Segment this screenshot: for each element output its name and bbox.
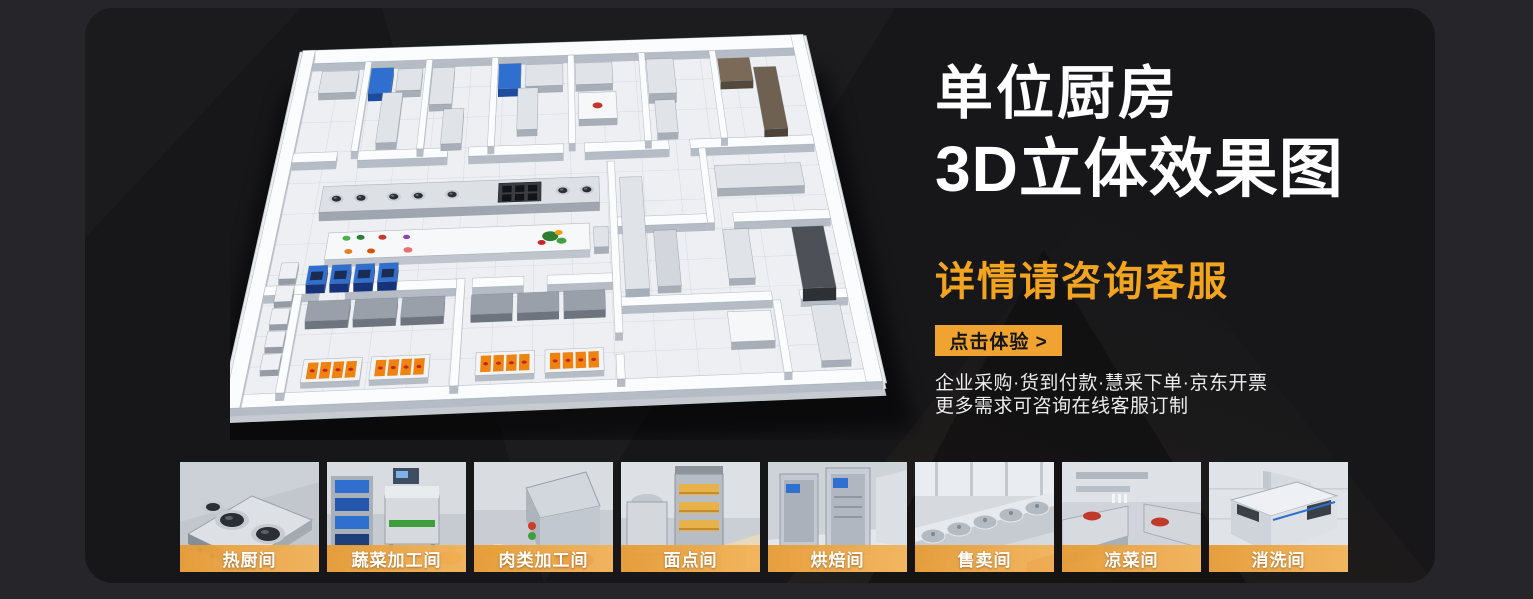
kitchen-3d-floorplan-image [230, 20, 930, 440]
cta-button[interactable]: 点击体验 > [935, 325, 1062, 356]
description-line-1: 企业采购·货到付款·慧采下单·京东开票 [935, 372, 1435, 395]
thumbnail-label: 烘焙间 [768, 545, 907, 572]
thumbnail-label: 凉菜间 [1062, 545, 1201, 572]
title-line-2: 3D立体效果图 [935, 137, 1435, 201]
subtitle: 详情请咨询客服 [935, 249, 1435, 307]
thumbnail-meat-processing[interactable]: 肉类加工间 [474, 462, 613, 572]
promo-banner: 单位厨房 3D立体效果图 详情请咨询客服 点击体验 > 企业采购·货到付款·慧采… [0, 0, 1533, 599]
thumbnail-selling-room[interactable]: 售卖间 [915, 462, 1054, 572]
banner-card: 单位厨房 3D立体效果图 详情请咨询客服 点击体验 > 企业采购·货到付款·慧采… [85, 8, 1435, 583]
thumbnail-pastry-room[interactable]: 面点间 [621, 462, 760, 572]
description-line-2: 更多需求可咨询在线客服订制 [935, 395, 1435, 418]
description-lines: 企业采购·货到付款·慧采下单·京东开票 更多需求可咨询在线客服订制 [935, 372, 1435, 418]
room-thumbnail-gallery: 热厨间 蔬菜加工间 [180, 462, 1348, 572]
thumbnail-hot-kitchen[interactable]: 热厨间 [180, 462, 319, 572]
thumbnail-label: 售卖间 [915, 545, 1054, 572]
thumbnail-washing-room[interactable]: 消洗间 [1209, 462, 1348, 572]
thumbnail-cold-dish-room[interactable]: 凉菜间 [1062, 462, 1201, 572]
thumbnail-label: 热厨间 [180, 545, 319, 572]
thumbnail-label: 消洗间 [1209, 545, 1348, 572]
thumbnail-label: 肉类加工间 [474, 545, 613, 572]
thumbnail-label: 面点间 [621, 545, 760, 572]
thumbnail-baking-room[interactable]: 烘焙间 [768, 462, 907, 572]
thumbnail-vegetable-processing[interactable]: 蔬菜加工间 [327, 462, 466, 572]
thumbnail-label: 蔬菜加工间 [327, 545, 466, 572]
title-line-1: 单位厨房 [935, 64, 1435, 125]
hero-text-block: 单位厨房 3D立体效果图 详情请咨询客服 点击体验 > 企业采购·货到付款·慧采… [935, 64, 1435, 418]
